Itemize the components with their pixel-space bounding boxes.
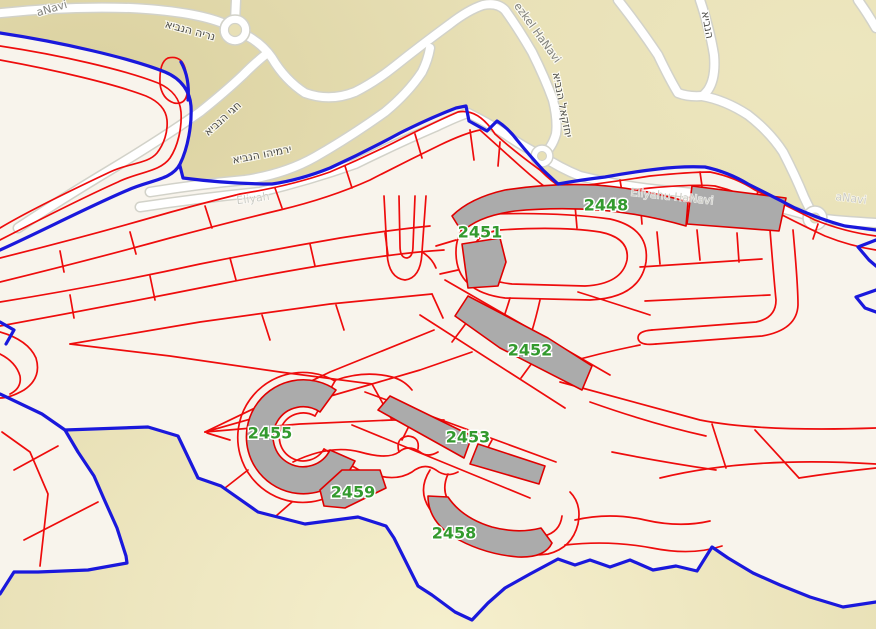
roundabout-center (229, 24, 242, 37)
building-2451[interactable] (462, 238, 506, 288)
parcel-label-2459[interactable]: 2459 (331, 483, 376, 502)
map-canvas[interactable]: נריה הנביאaNaviחגי הנביאירמיהו הנביאezke… (0, 0, 876, 629)
parcel-label-2453[interactable]: 2453 (446, 428, 491, 447)
parcel-label-2458[interactable]: 2458 (432, 524, 477, 543)
parcel-label-2452[interactable]: 2452 (508, 341, 553, 360)
parcel-label-2448[interactable]: 2448 (584, 196, 629, 215)
parcel-label-2455[interactable]: 2455 (248, 424, 293, 443)
map-svg[interactable]: נריה הנביאaNaviחגי הנביאירמיהו הנביאezke… (0, 0, 876, 629)
parcel-label-2451[interactable]: 2451 (458, 223, 503, 242)
roundabout-center (538, 152, 547, 161)
